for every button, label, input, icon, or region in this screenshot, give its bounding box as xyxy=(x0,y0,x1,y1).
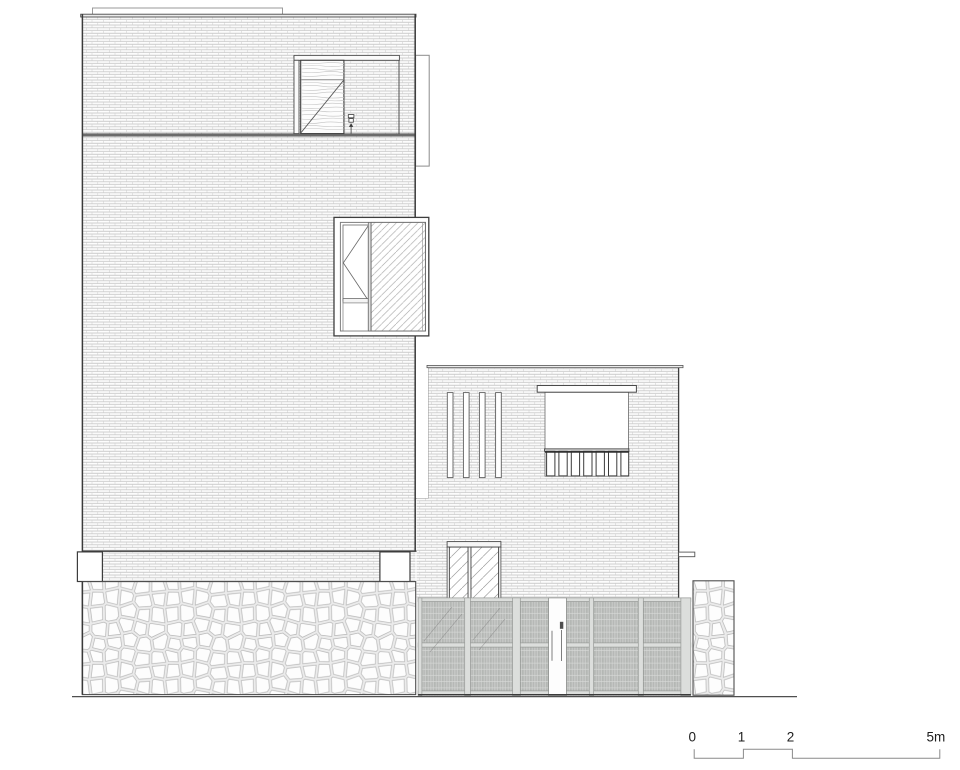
svg-text:5m: 5m xyxy=(927,730,946,745)
svg-text:1: 1 xyxy=(738,730,746,745)
svg-text:2: 2 xyxy=(787,730,795,745)
svg-text:0: 0 xyxy=(689,730,697,745)
